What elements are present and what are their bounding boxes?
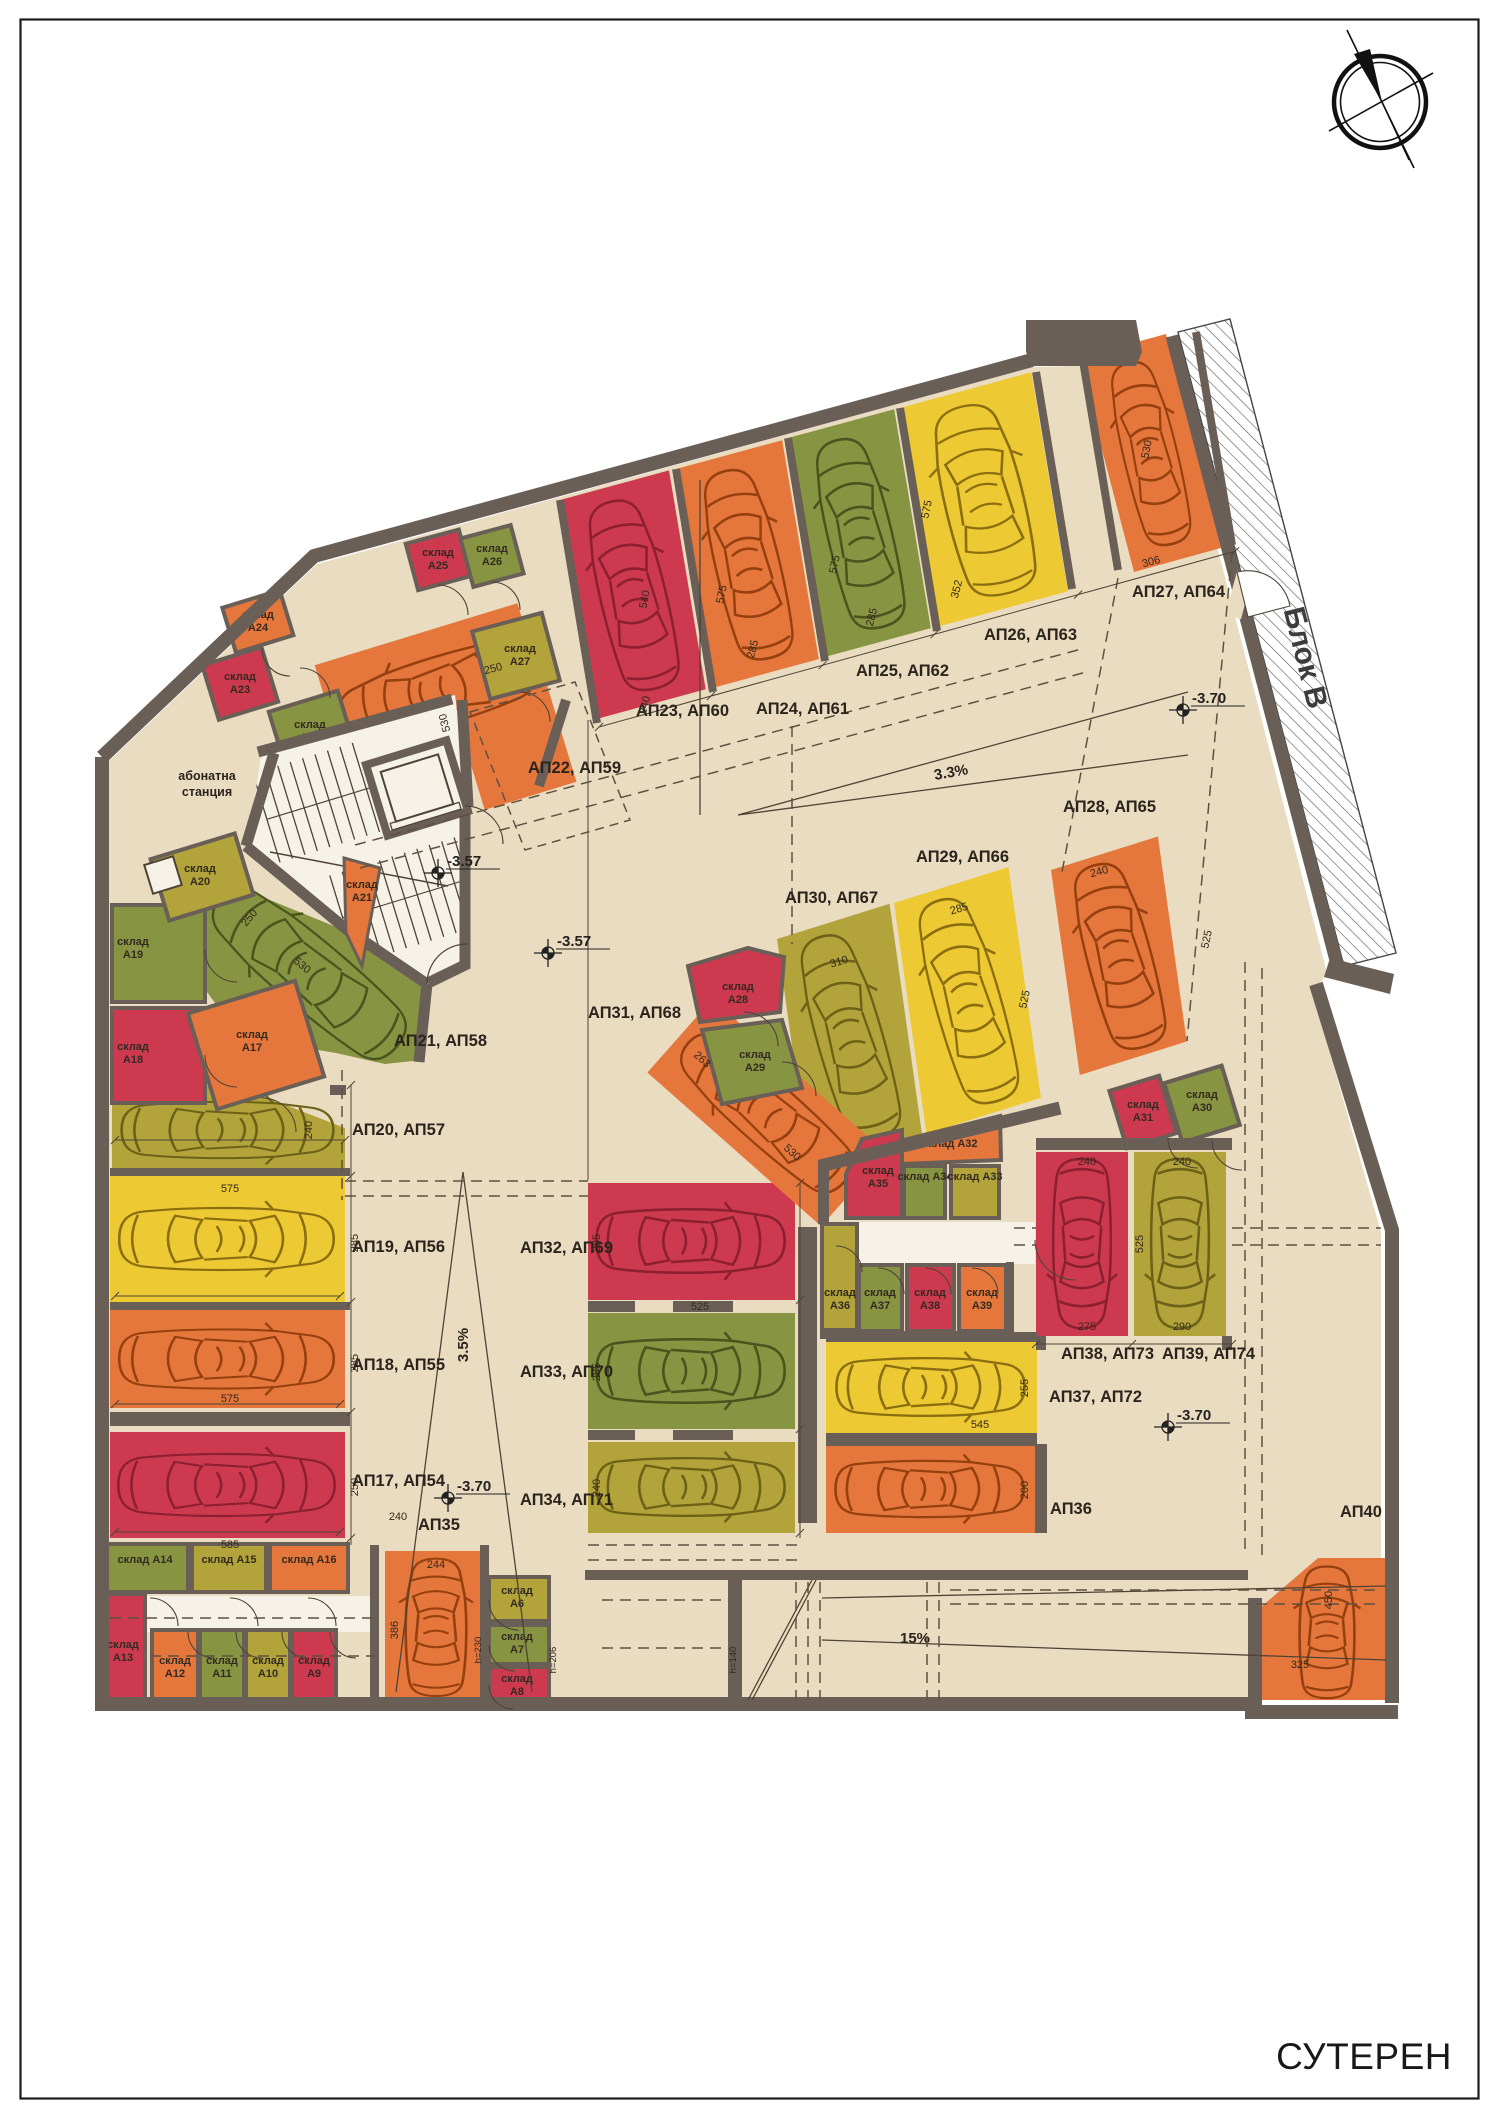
svg-text:АП26, АП63: АП26, АП63 xyxy=(984,626,1077,644)
svg-text:A17: A17 xyxy=(242,1042,262,1054)
svg-text:АП24, АП61: АП24, АП61 xyxy=(756,700,849,718)
svg-text:585: 585 xyxy=(221,1539,239,1551)
svg-text:h=140: h=140 xyxy=(728,1647,739,1674)
svg-text:склад: склад xyxy=(206,1655,238,1667)
svg-text:3.5%: 3.5% xyxy=(455,1328,472,1362)
svg-text:A11: A11 xyxy=(212,1668,232,1680)
svg-text:290: 290 xyxy=(1173,1321,1191,1333)
svg-text:285: 285 xyxy=(349,1234,361,1252)
svg-text:АП28, АП65: АП28, АП65 xyxy=(1063,798,1156,816)
svg-text:A13: A13 xyxy=(113,1652,133,1664)
svg-text:A21: A21 xyxy=(352,892,372,904)
svg-text:склад A14: склад A14 xyxy=(117,1554,173,1566)
svg-text:склад: склад xyxy=(184,863,216,875)
svg-text:575: 575 xyxy=(221,1183,239,1195)
svg-text:A12: A12 xyxy=(165,1668,185,1680)
svg-text:-3.57: -3.57 xyxy=(557,933,591,950)
svg-text:A26: A26 xyxy=(482,556,502,568)
svg-text:АП17, АП54: АП17, АП54 xyxy=(352,1472,446,1490)
svg-text:240: 240 xyxy=(303,1121,315,1139)
svg-text:склад: склад xyxy=(298,1655,330,1667)
svg-text:575: 575 xyxy=(221,1393,239,1405)
svg-text:A6: A6 xyxy=(510,1598,524,1610)
svg-text:АП21, АП58: АП21, АП58 xyxy=(394,1032,487,1050)
svg-text:склад: склад xyxy=(476,543,508,555)
svg-text:525: 525 xyxy=(691,1301,709,1313)
svg-text:A18: A18 xyxy=(123,1054,143,1066)
svg-text:АП25, АП62: АП25, АП62 xyxy=(856,662,949,680)
svg-text:A20: A20 xyxy=(190,876,210,888)
svg-text:склад: склад xyxy=(422,547,454,559)
svg-text:-3.70: -3.70 xyxy=(457,1478,491,1495)
svg-text:склад: склад xyxy=(252,1655,284,1667)
svg-text:285: 285 xyxy=(591,1234,603,1252)
svg-text:244: 244 xyxy=(427,1559,445,1571)
svg-text:АП39, АП74: АП39, АП74 xyxy=(1162,1345,1256,1363)
svg-text:склад: склад xyxy=(117,1041,149,1053)
svg-text:A9: A9 xyxy=(307,1668,321,1680)
svg-text:АП30, АП67: АП30, АП67 xyxy=(785,889,878,907)
svg-text:склад: склад xyxy=(159,1655,191,1667)
svg-text:-3.70: -3.70 xyxy=(1177,1407,1211,1424)
svg-text:склад: склад xyxy=(236,1029,268,1041)
svg-text:240: 240 xyxy=(1173,1156,1191,1168)
svg-text:абонатна: абонатна xyxy=(178,769,236,783)
svg-text:A29: A29 xyxy=(745,1062,765,1074)
svg-text:склад A33: склад A33 xyxy=(947,1171,1002,1183)
svg-text:АП36: АП36 xyxy=(1050,1500,1092,1518)
svg-text:450: 450 xyxy=(1323,1591,1335,1609)
svg-text:545: 545 xyxy=(971,1419,989,1431)
svg-text:склад: склад xyxy=(224,671,256,683)
svg-text:АП31, АП68: АП31, АП68 xyxy=(588,1004,681,1022)
svg-text:склад: склад xyxy=(501,1673,533,1685)
svg-text:склад A15: склад A15 xyxy=(201,1554,256,1566)
svg-text:A30: A30 xyxy=(1192,1102,1212,1114)
svg-text:A28: A28 xyxy=(728,994,748,1006)
svg-text:АП38, АП73: АП38, АП73 xyxy=(1061,1345,1154,1363)
svg-text:АП20, АП57: АП20, АП57 xyxy=(352,1121,445,1139)
svg-text:склад: склад xyxy=(501,1585,533,1597)
svg-text:-3.70: -3.70 xyxy=(1192,690,1226,707)
svg-text:склад: склад xyxy=(862,1165,894,1177)
svg-text:250: 250 xyxy=(349,1478,361,1496)
svg-text:склад: склад xyxy=(1127,1099,1159,1111)
svg-text:275: 275 xyxy=(1078,1321,1096,1333)
svg-text:A36: A36 xyxy=(830,1300,850,1312)
svg-text:станция: станция xyxy=(182,785,232,799)
svg-text:h=230: h=230 xyxy=(473,1637,484,1664)
svg-text:A39: A39 xyxy=(972,1300,992,1312)
svg-text:склад: склад xyxy=(722,981,754,993)
svg-text:325: 325 xyxy=(1291,1659,1309,1671)
svg-text:склад: склад xyxy=(824,1287,856,1299)
svg-text:склад: склад xyxy=(504,643,536,655)
svg-text:A23: A23 xyxy=(230,684,250,696)
svg-text:АП22, АП59: АП22, АП59 xyxy=(528,759,621,777)
svg-text:склад: склад xyxy=(107,1639,139,1651)
svg-text:386: 386 xyxy=(389,1621,401,1639)
svg-text:склад: склад xyxy=(966,1287,998,1299)
svg-text:АП35: АП35 xyxy=(418,1516,460,1534)
svg-text:склад A34: склад A34 xyxy=(897,1171,953,1183)
svg-text:АП40: АП40 xyxy=(1340,1503,1382,1521)
svg-text:285: 285 xyxy=(349,1354,361,1372)
svg-text:-3.57: -3.57 xyxy=(447,853,481,870)
svg-text:A7: A7 xyxy=(510,1644,524,1656)
svg-text:285: 285 xyxy=(591,1363,603,1381)
svg-text:525: 525 xyxy=(1134,1235,1146,1253)
svg-text:A27: A27 xyxy=(510,656,530,668)
svg-text:A37: A37 xyxy=(870,1300,890,1312)
svg-text:240: 240 xyxy=(1078,1156,1096,1168)
svg-text:АП18, АП55: АП18, АП55 xyxy=(352,1356,445,1374)
svg-text:склад: склад xyxy=(739,1049,771,1061)
svg-text:A8: A8 xyxy=(510,1686,524,1698)
svg-text:A19: A19 xyxy=(123,949,143,961)
svg-text:A25: A25 xyxy=(428,560,448,572)
svg-text:склад: склад xyxy=(1186,1089,1218,1101)
svg-text:255: 255 xyxy=(1019,1379,1031,1397)
svg-text:h=206: h=206 xyxy=(548,1647,559,1674)
svg-text:15%: 15% xyxy=(900,1630,930,1647)
svg-text:A38: A38 xyxy=(920,1300,940,1312)
svg-text:склад: склад xyxy=(501,1631,533,1643)
svg-text:АП29, АП66: АП29, АП66 xyxy=(916,848,1009,866)
svg-text:склад: склад xyxy=(864,1287,896,1299)
svg-text:A35: A35 xyxy=(868,1178,888,1190)
svg-text:склад: склад xyxy=(346,879,378,891)
svg-text:склад: склад xyxy=(117,936,149,948)
svg-text:A31: A31 xyxy=(1133,1112,1153,1124)
svg-text:240: 240 xyxy=(389,1511,407,1523)
svg-text:склад A16: склад A16 xyxy=(281,1554,336,1566)
svg-text:СУТЕРЕН: СУТЕРЕН xyxy=(1276,2036,1452,2077)
svg-text:АП27, АП64: АП27, АП64 xyxy=(1132,583,1226,601)
svg-text:АП19, АП56: АП19, АП56 xyxy=(352,1238,445,1256)
svg-text:240: 240 xyxy=(591,1479,603,1497)
svg-text:200: 200 xyxy=(1019,1481,1031,1499)
svg-text:A10: A10 xyxy=(258,1668,278,1680)
svg-text:АП37, АП72: АП37, АП72 xyxy=(1049,1388,1142,1406)
svg-text:склад: склад xyxy=(914,1287,946,1299)
